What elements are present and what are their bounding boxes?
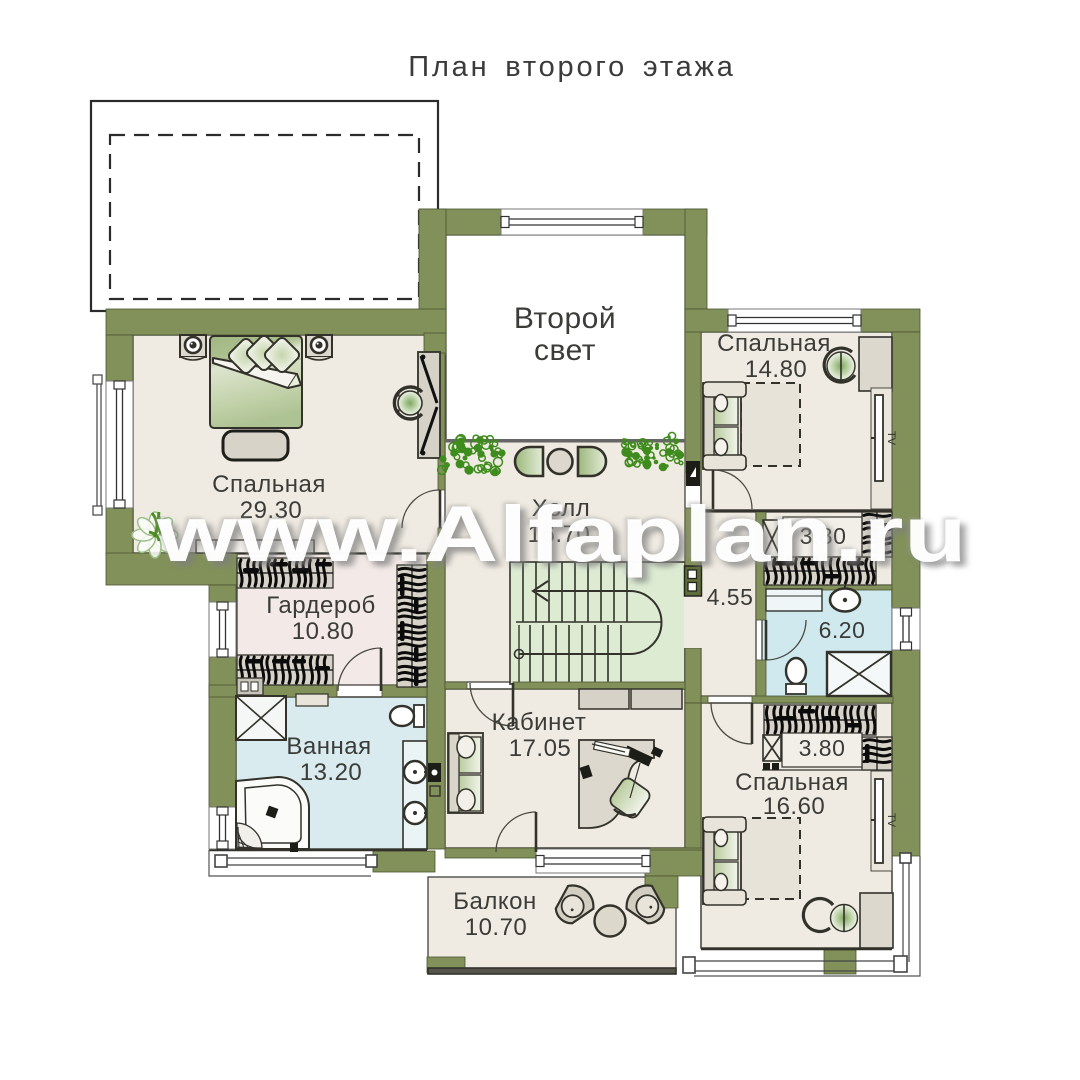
svg-text:TV: TV xyxy=(885,813,897,828)
svg-text:14.80: 14.80 xyxy=(745,356,808,383)
svg-text:4.55: 4.55 xyxy=(707,584,754,610)
svg-text:Спальная: Спальная xyxy=(735,769,849,796)
svg-text:Гардероб: Гардероб xyxy=(266,592,376,619)
svg-text:10.80: 10.80 xyxy=(292,618,355,645)
svg-text:свет: свет xyxy=(534,334,596,367)
svg-text:17.05: 17.05 xyxy=(509,735,572,762)
svg-text:Балкон: Балкон xyxy=(453,888,536,915)
svg-text:10.70: 10.70 xyxy=(465,914,528,941)
svg-text:Спальная: Спальная xyxy=(717,330,831,357)
svg-text:www.Alfaplan.ru: www.Alfaplan.ru xyxy=(156,490,968,578)
svg-text:TV: TV xyxy=(885,431,897,446)
svg-text:Кабинет: Кабинет xyxy=(492,709,587,736)
svg-text:План второго этажа: План второго этажа xyxy=(408,51,735,83)
svg-text:Ванная: Ванная xyxy=(286,733,371,760)
svg-text:Второй: Второй xyxy=(514,302,616,335)
svg-text:16.60: 16.60 xyxy=(763,793,826,820)
svg-text:3.80: 3.80 xyxy=(799,735,846,761)
svg-text:13.20: 13.20 xyxy=(300,759,363,786)
svg-text:6.20: 6.20 xyxy=(819,617,866,643)
